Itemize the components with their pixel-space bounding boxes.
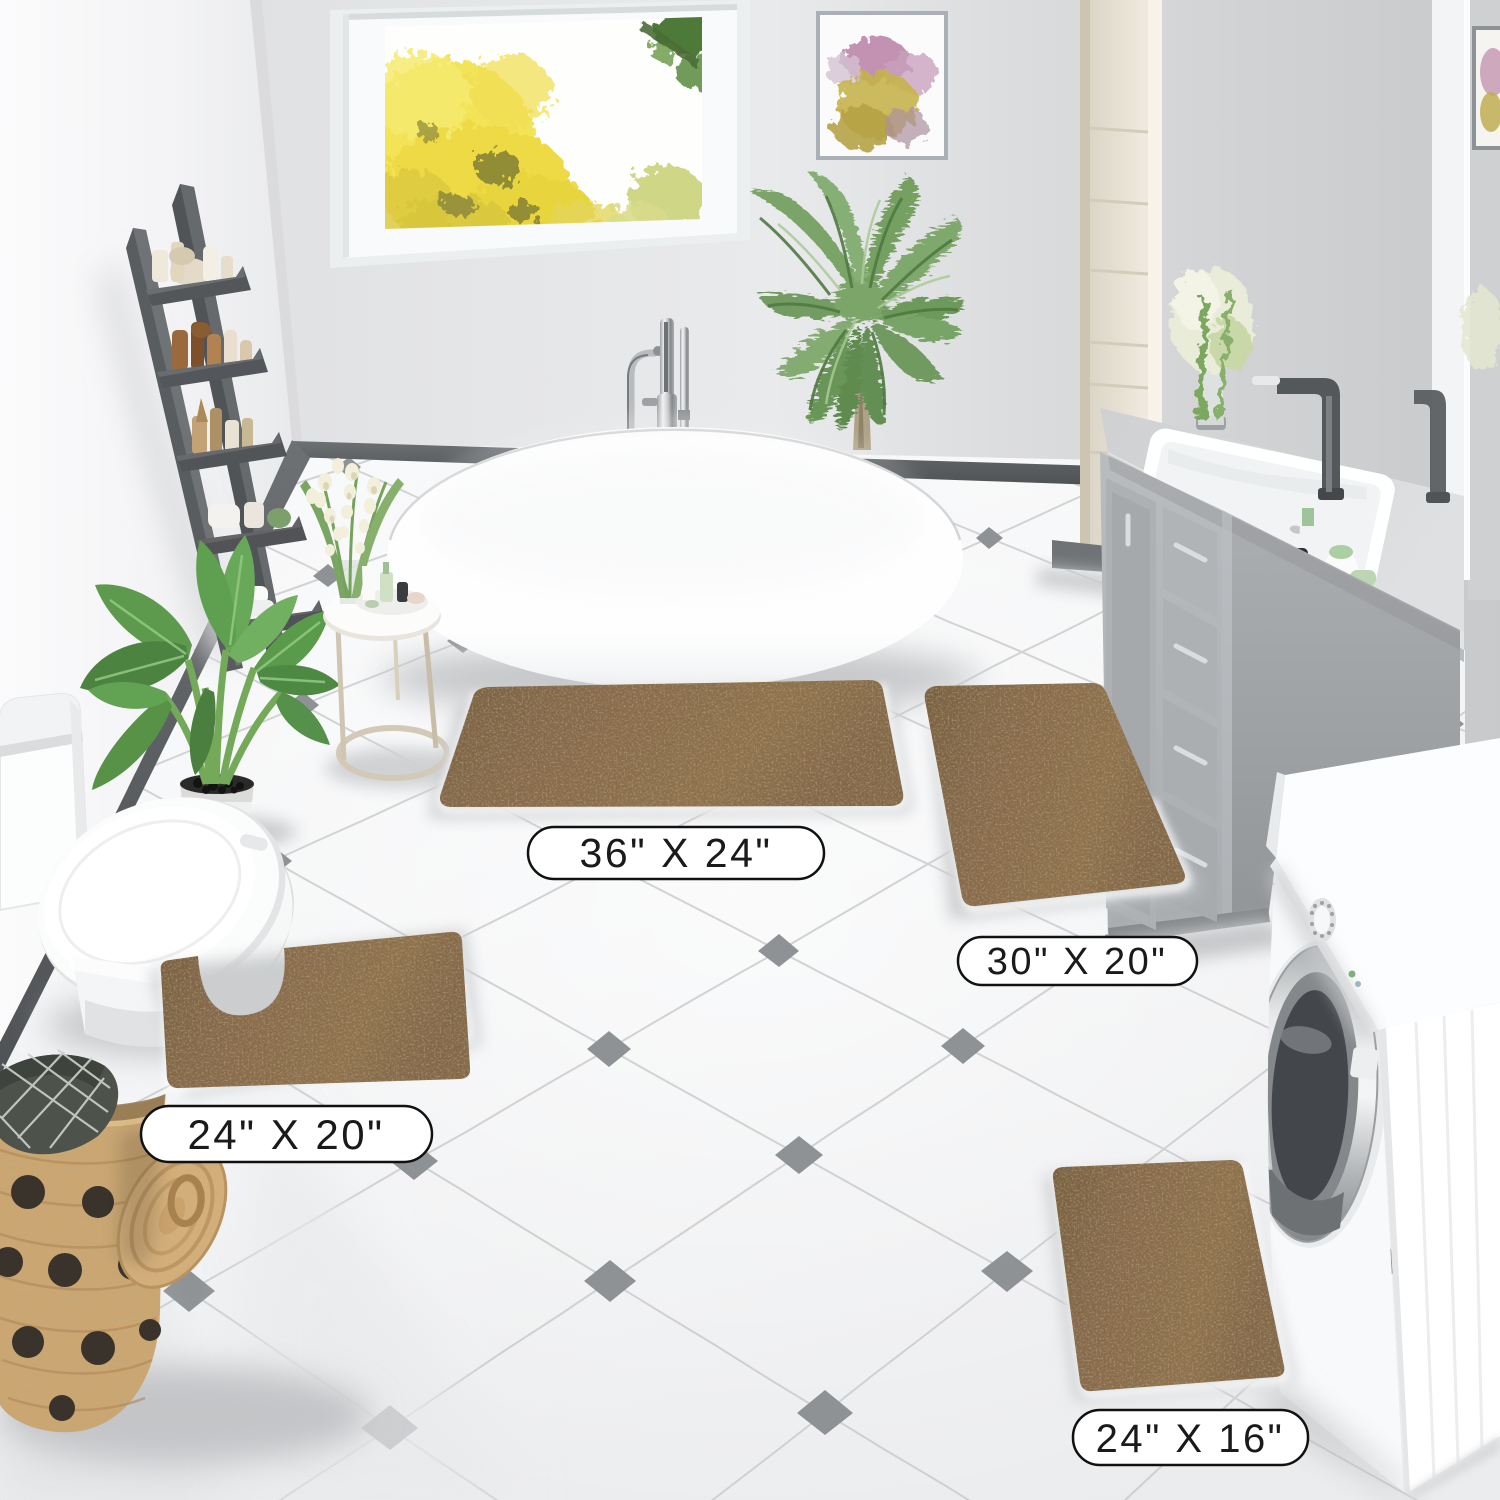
svg-text:30" X 20": 30" X 20" [987,941,1167,983]
svg-text:36" X 24": 36" X 24" [580,830,773,876]
svg-text:24" X 20": 24" X 20" [187,1111,384,1158]
svg-text:24" X 16": 24" X 16" [1096,1417,1285,1461]
